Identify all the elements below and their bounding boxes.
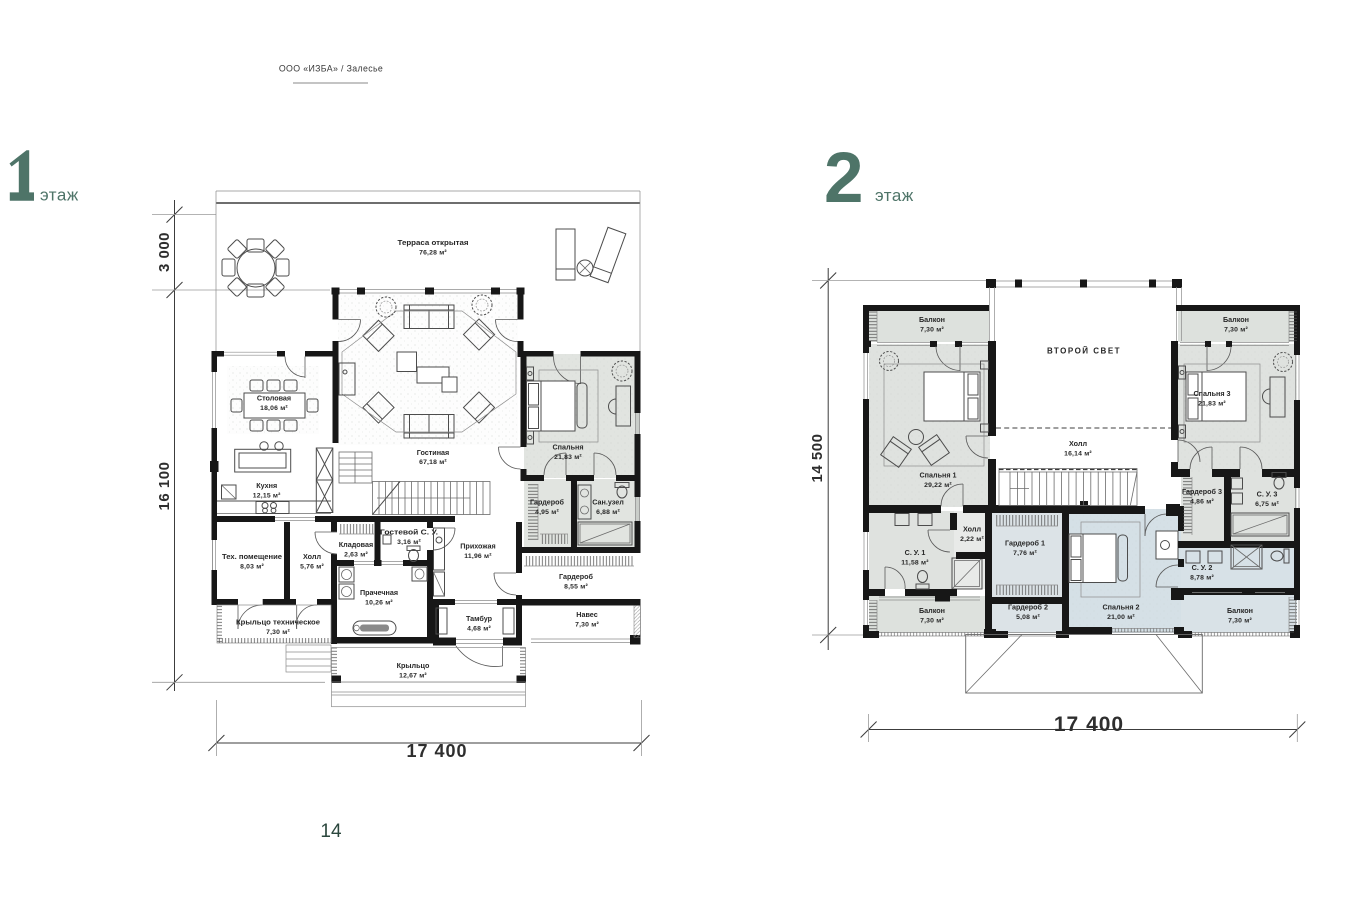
svg-text:Гостиная: Гостиная bbox=[417, 448, 449, 457]
svg-text:21,83 м²: 21,83 м² bbox=[1198, 401, 1226, 408]
svg-text:2,63 м²: 2,63 м² bbox=[344, 552, 368, 559]
svg-text:3 000: 3 000 bbox=[156, 232, 173, 272]
svg-text:12,15 м²: 12,15 м² bbox=[253, 493, 281, 500]
svg-text:18,06 м²: 18,06 м² bbox=[260, 405, 288, 412]
svg-text:29,22 м²: 29,22 м² bbox=[924, 482, 952, 489]
svg-text:Холл: Холл bbox=[963, 525, 981, 534]
svg-text:Спальня 1: Спальня 1 bbox=[919, 471, 956, 480]
svg-text:этаж: этаж bbox=[875, 186, 914, 205]
svg-text:7,30 м²: 7,30 м² bbox=[920, 327, 944, 334]
svg-text:3,16 м²: 3,16 м² bbox=[397, 539, 421, 546]
svg-text:5,08 м²: 5,08 м² bbox=[1016, 614, 1040, 621]
svg-text:Спальня: Спальня bbox=[552, 443, 583, 452]
svg-text:11,58 м²: 11,58 м² bbox=[901, 560, 929, 567]
svg-text:Крыльцо: Крыльцо bbox=[397, 661, 430, 670]
svg-text:7,30 м²: 7,30 м² bbox=[1228, 618, 1252, 625]
svg-text:16,14 м²: 16,14 м² bbox=[1064, 451, 1092, 458]
svg-text:17 400: 17 400 bbox=[1054, 713, 1124, 736]
svg-text:Терраса открытая: Терраса открытая bbox=[398, 238, 469, 247]
svg-text:Крыльцо техническое: Крыльцо техническое bbox=[236, 618, 320, 627]
svg-text:Холл: Холл bbox=[1069, 439, 1087, 448]
svg-text:Балкон: Балкон bbox=[1223, 315, 1249, 324]
svg-text:Прачечная: Прачечная bbox=[360, 588, 398, 597]
svg-text:6,88 м²: 6,88 м² bbox=[596, 509, 620, 516]
svg-text:Балкон: Балкон bbox=[919, 315, 945, 324]
svg-text:ООО «ИЗБА» / Залесье: ООО «ИЗБА» / Залесье bbox=[279, 64, 383, 74]
svg-text:Тамбур: Тамбур bbox=[466, 614, 493, 623]
svg-text:Кухня: Кухня bbox=[256, 481, 277, 490]
svg-text:11,96 м²: 11,96 м² bbox=[464, 553, 492, 560]
svg-text:14 500: 14 500 bbox=[809, 434, 826, 483]
svg-text:этаж: этаж bbox=[40, 186, 79, 205]
svg-text:4,68 м²: 4,68 м² bbox=[467, 626, 491, 633]
svg-text:Прихожая: Прихожая bbox=[460, 542, 495, 551]
svg-text:7,30 м²: 7,30 м² bbox=[920, 618, 944, 625]
svg-text:2,22 м²: 2,22 м² bbox=[960, 536, 984, 543]
svg-text:Гардероб 3: Гардероб 3 bbox=[1182, 487, 1222, 496]
svg-text:8,03 м²: 8,03 м² bbox=[240, 564, 264, 571]
svg-text:4,95 м²: 4,95 м² bbox=[535, 509, 559, 516]
svg-text:8,78 м²: 8,78 м² bbox=[1190, 575, 1214, 582]
svg-text:Гардероб: Гардероб bbox=[530, 498, 565, 507]
svg-text:7,76 м²: 7,76 м² bbox=[1013, 550, 1037, 557]
svg-text:7,30 м²: 7,30 м² bbox=[266, 629, 290, 636]
svg-text:17 400: 17 400 bbox=[406, 741, 467, 761]
svg-text:7,30 м²: 7,30 м² bbox=[575, 622, 599, 629]
svg-text:2: 2 bbox=[824, 139, 864, 218]
svg-text:21,83 м²: 21,83 м² bbox=[554, 454, 582, 461]
svg-text:ВТОРОЙ СВЕТ: ВТОРОЙ СВЕТ bbox=[1047, 347, 1121, 356]
svg-text:Балкон: Балкон bbox=[1227, 606, 1253, 615]
svg-text:7,30 м²: 7,30 м² bbox=[1224, 327, 1248, 334]
svg-text:Гардероб 1: Гардероб 1 bbox=[1005, 539, 1045, 548]
svg-text:Столовая: Столовая bbox=[257, 394, 291, 403]
svg-text:Гардероб 2: Гардероб 2 bbox=[1008, 603, 1048, 612]
svg-text:10,26 м²: 10,26 м² bbox=[365, 600, 393, 607]
svg-text:Балкон: Балкон bbox=[919, 606, 945, 615]
svg-text:Спальня 2: Спальня 2 bbox=[1102, 603, 1139, 612]
svg-text:С. У. 2: С. У. 2 bbox=[1192, 563, 1213, 572]
svg-text:67,18 м²: 67,18 м² bbox=[419, 459, 447, 466]
svg-text:8,55 м²: 8,55 м² bbox=[564, 584, 588, 591]
svg-text:Сан.узел: Сан.узел bbox=[592, 498, 624, 507]
svg-text:Кладовая: Кладовая bbox=[339, 540, 373, 549]
svg-text:С. У. 3: С. У. 3 bbox=[1257, 490, 1278, 499]
svg-text:12,67 м²: 12,67 м² bbox=[399, 673, 427, 680]
svg-text:Холл: Холл bbox=[303, 552, 321, 561]
svg-text:76,28 м²: 76,28 м² bbox=[419, 250, 447, 257]
svg-text:5,76 м²: 5,76 м² bbox=[300, 564, 324, 571]
svg-text:14: 14 bbox=[320, 821, 342, 842]
svg-text:Тех. помещение: Тех. помещение bbox=[222, 552, 282, 561]
svg-text:Навес: Навес bbox=[576, 610, 597, 619]
svg-text:4,86 м²: 4,86 м² bbox=[1190, 499, 1214, 506]
svg-text:16 100: 16 100 bbox=[156, 462, 173, 511]
svg-text:Гардероб: Гардероб bbox=[559, 572, 594, 581]
svg-text:Спальня 3: Спальня 3 bbox=[1193, 389, 1230, 398]
svg-text:С. У. 1: С. У. 1 bbox=[905, 548, 926, 557]
svg-text:21,00 м²: 21,00 м² bbox=[1107, 614, 1135, 621]
svg-text:6,75 м²: 6,75 м² bbox=[1255, 501, 1279, 508]
